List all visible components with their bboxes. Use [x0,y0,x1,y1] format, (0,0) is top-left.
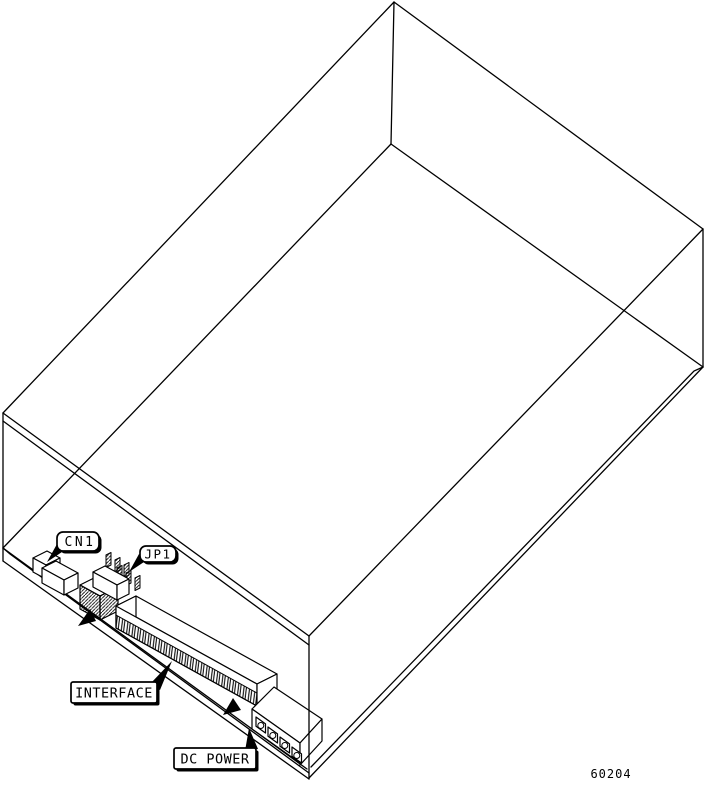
enclosure-wireframe [3,2,703,779]
edge-front-right-top [309,229,703,636]
part-number: 60204 [590,767,631,781]
interface-arrow-marker [223,698,241,715]
callout-interface-label: INTERFACE [75,686,153,702]
drive-enclosure-diagram: CN1 JP1 INTERFACE DC POWER 60204 [0,0,705,794]
edge-inner-right [391,144,703,367]
dc-power-connector [252,687,322,765]
callout-jp1: JP1 [129,546,179,572]
edge-top-right [394,2,703,229]
callout-cn1-label: CN1 [65,535,96,550]
callout-dc-power-label: DC POWER [180,752,249,768]
callout-jp1-label: JP1 [144,547,171,562]
edge-top-left [3,2,394,413]
edge-bottom-right-outer [309,367,703,778]
callout-interface: INTERFACE [71,661,172,706]
edge-front-left-top [3,413,309,636]
edge-inner-left [3,144,391,548]
edge-bottom-right-seam [311,367,703,767]
edge-rear-vertical [391,2,394,144]
cn1-connector [33,551,78,595]
technical-diagram-page: CN1 JP1 INTERFACE DC POWER 60204 [0,0,705,794]
